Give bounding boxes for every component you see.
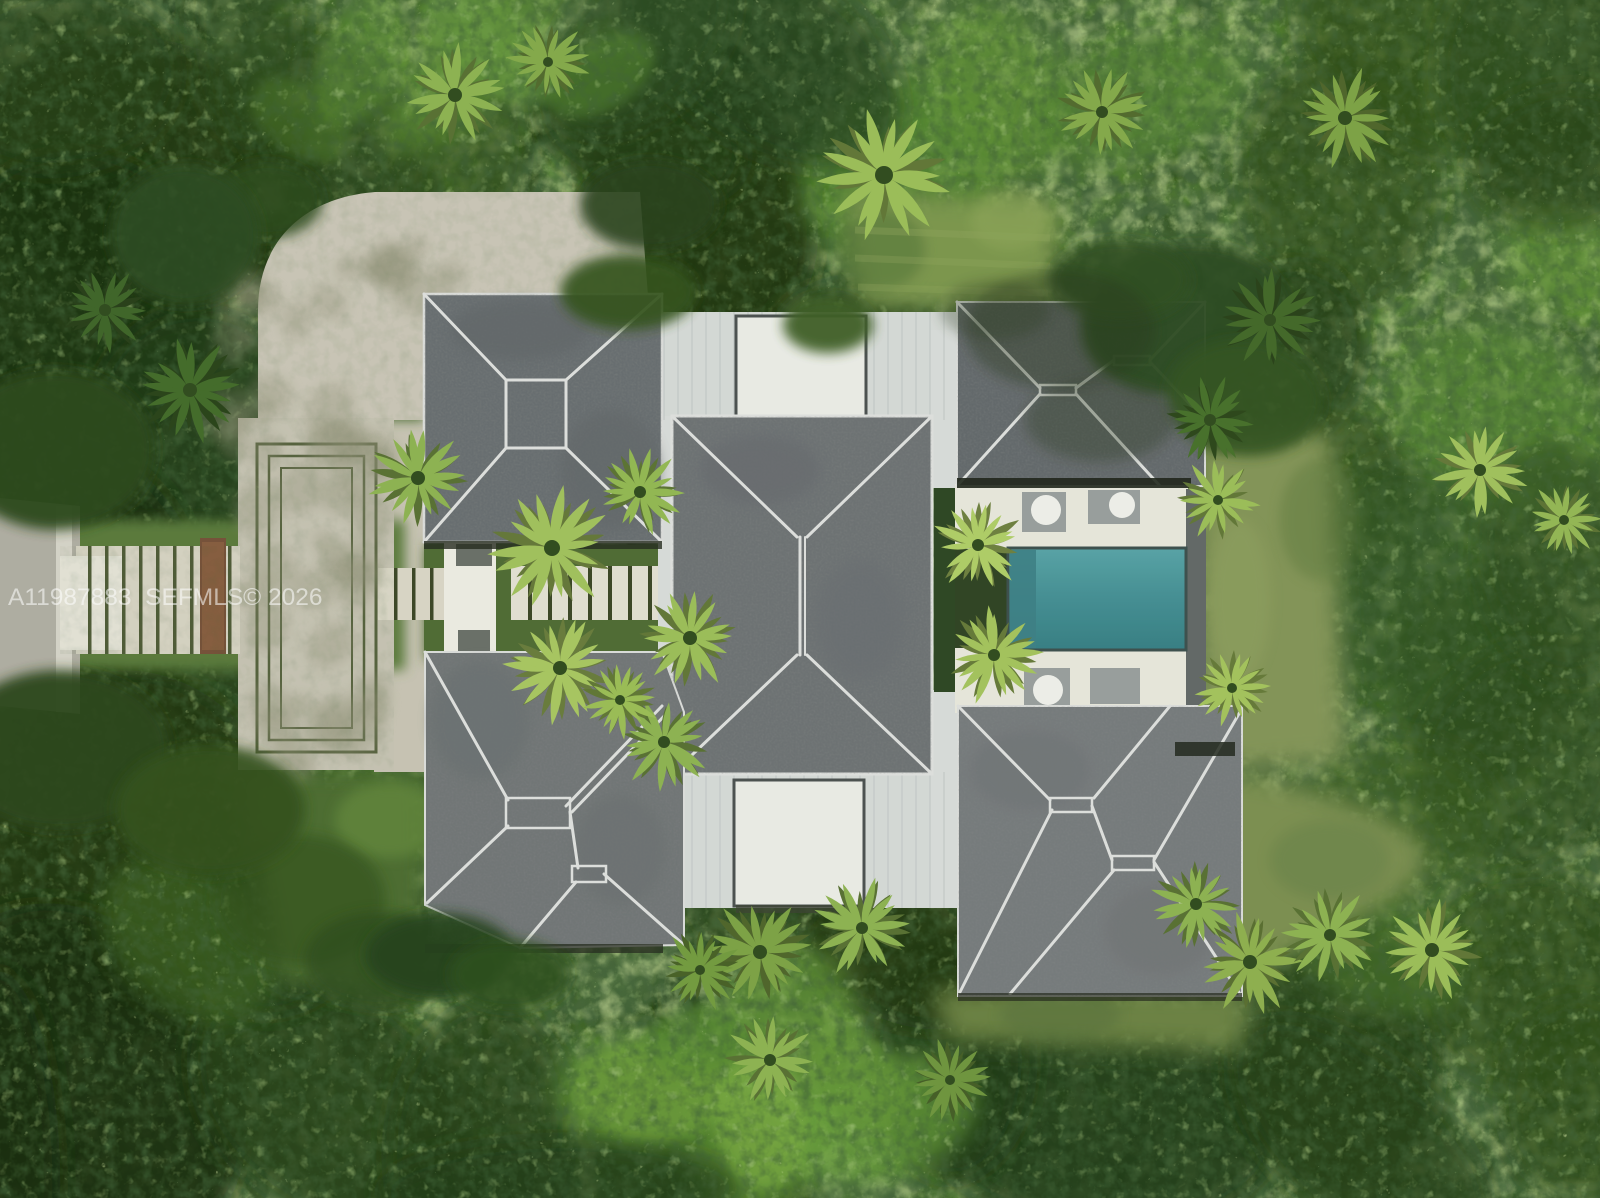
svg-text:A11987883 SEFMLS© 2026: A11987883 SEFMLS© 2026 xyxy=(8,584,323,611)
